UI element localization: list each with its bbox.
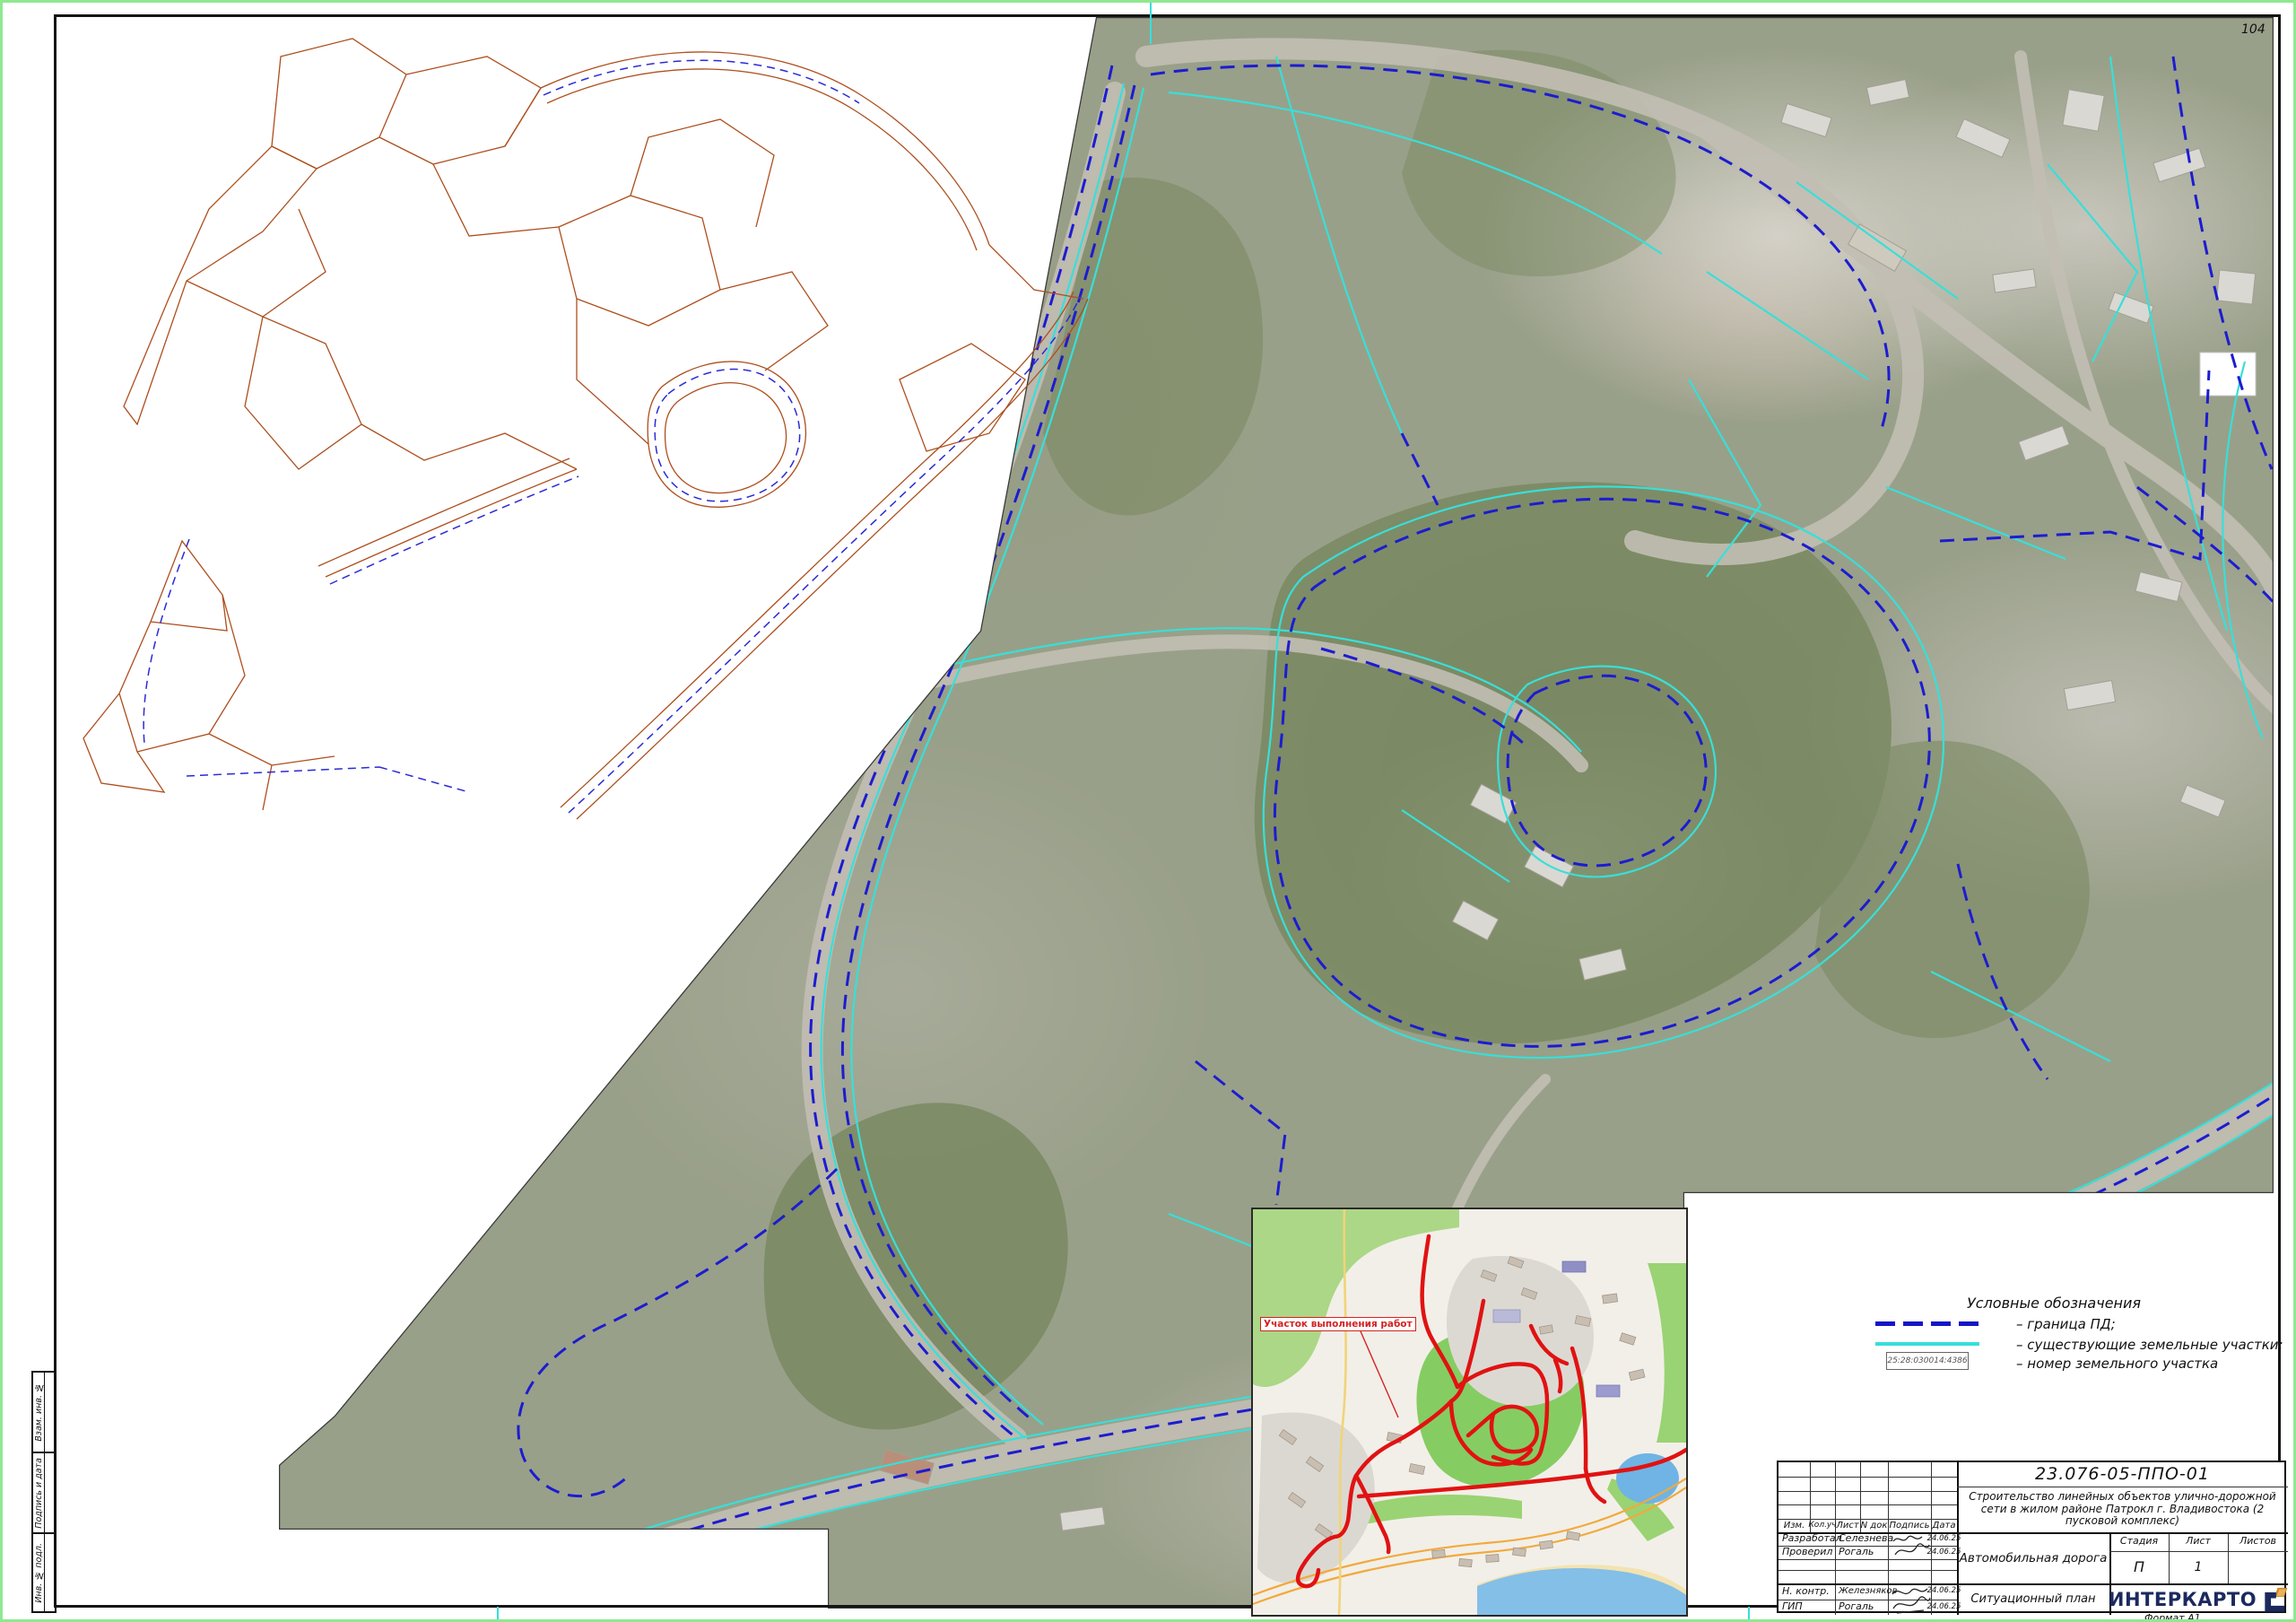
legend-swatch-parcels-icon <box>1875 1342 1979 1346</box>
stamp-listov-label: Листов <box>2228 1532 2288 1551</box>
legend-item-parcels: – существующие земельные участки; <box>2016 1337 2283 1353</box>
stamp-stage-value: П <box>2109 1551 2169 1583</box>
margin-label-podpis: Подпись и дата <box>33 1453 45 1532</box>
stamp-date-developer: 24.06.25 <box>1931 1532 1957 1546</box>
stamp-name-checker: Рогаль <box>1835 1546 1888 1559</box>
legend-parcel-number-box: 25:28:030014:4386 <box>1886 1352 1969 1370</box>
stamp-list-label: Лист <box>2169 1532 2228 1551</box>
legend: Условные обозначения – граница ПД; – сущ… <box>1870 1295 2283 1393</box>
stamp-logo: ИНТЕРКАРТО <box>2109 1585 2288 1615</box>
inset-map-canvas <box>1253 1209 1686 1615</box>
legend-swatch-boundary-icon <box>1875 1321 1979 1326</box>
registration-tick-top <box>1150 3 1152 44</box>
margin-label-inv: Инв. № подл. <box>33 1534 45 1611</box>
stamp-object-title: Автомобильная дорога <box>1957 1534 2109 1583</box>
stamp-line <box>1779 1559 1957 1560</box>
stamp-line <box>1779 1477 1957 1478</box>
stamp-role-checker: Проверил <box>1779 1546 1835 1559</box>
drawing-sheet: 104 Взам. инв. № Подпись и дата Инв. № п… <box>0 0 2296 1622</box>
stamp-list-value: 1 <box>2169 1551 2228 1583</box>
stamp-header-koluch: Кол.уч <box>1810 1519 1835 1532</box>
intercarto-logo-icon <box>2262 1587 2289 1614</box>
margin-cell-inv: Инв. № подл. <box>33 1534 55 1611</box>
margin-cell-vzam: Взам. инв. № <box>33 1373 55 1453</box>
stamp-name-gip: Рогаль <box>1835 1600 1888 1615</box>
registration-tick-bottom-left <box>497 1607 499 1622</box>
legend-item-parcel-number: – номер земельного участка <box>2016 1356 2218 1372</box>
stamp-doc-number: 23.076-05-ППО-01 <box>1957 1462 2288 1487</box>
stamp-date-checker: 24.06.25 <box>1931 1546 1957 1559</box>
stamp-header-ndok: N док <box>1860 1519 1888 1532</box>
stamp-stage-label: Стадия <box>2109 1532 2169 1551</box>
title-block: Изм. Кол.уч Лист N док Подпись Дата Разр… <box>1777 1461 2286 1613</box>
inset-map: Участок выполнения работ <box>1251 1208 1688 1617</box>
stamp-name-ncontrol: Железняков <box>1835 1583 1888 1600</box>
signature-icon <box>1888 1583 1931 1615</box>
stamp-line <box>1779 1491 1957 1492</box>
stamp-header-list: Лист <box>1835 1519 1860 1532</box>
stamp-header-izm: Изм. <box>1779 1519 1810 1532</box>
legend-item-boundary: – граница ПД; <box>2016 1316 2116 1332</box>
stamp-line <box>1779 1504 1957 1505</box>
stamp-name-developer: Селезнева <box>1835 1532 1888 1546</box>
stamp-header-podpis: Подпись <box>1888 1519 1931 1532</box>
margin-label-block: Взам. инв. № Подпись и дата Инв. № подл. <box>31 1371 57 1613</box>
stamp-listov-value <box>2228 1551 2288 1583</box>
stamp-sheet-title: Ситуационный план <box>1957 1585 2109 1615</box>
stamp-role-ncontrol: Н. контр. <box>1779 1583 1835 1600</box>
stamp-role-developer: Разработал <box>1779 1532 1835 1546</box>
registration-tick-bottom-right <box>1748 1607 1750 1622</box>
stamp-header-data: Дата <box>1931 1519 1957 1532</box>
stamp-project-title: Строительство линейных объектов улично-д… <box>1961 1487 2284 1532</box>
margin-cell-podpis: Подпись и дата <box>33 1453 55 1534</box>
stamp-date-ncontrol: 24.06.25 <box>1931 1583 1957 1600</box>
stamp-date-gip: 24.06.25 <box>1931 1600 1957 1615</box>
signature-icon <box>1888 1532 1931 1559</box>
sheet-corner-number: 104 <box>2241 22 2266 37</box>
margin-label-vzam: Взам. инв. № <box>33 1373 45 1452</box>
legend-title: Условные обозначения <box>1967 1295 2141 1312</box>
stamp-role-gip: ГИП <box>1779 1600 1835 1615</box>
stamp-line <box>1779 1570 1957 1571</box>
work-area-label: Участок выполнения работ <box>1260 1317 1416 1331</box>
intercarto-logo-text: ИНТЕРКАРТО <box>2109 1589 2257 1610</box>
